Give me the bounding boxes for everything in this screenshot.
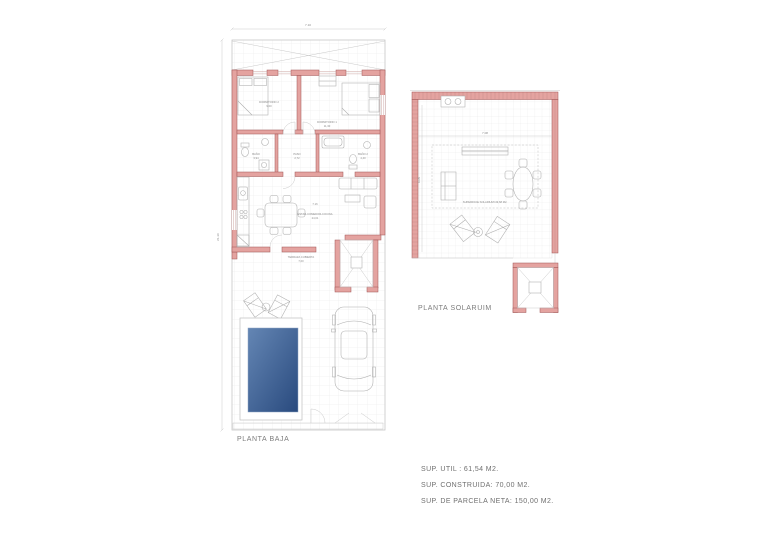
dimension-width: 7.10	[231, 23, 387, 31]
svg-text:7.10: 7.10	[305, 23, 311, 27]
ground-floor-plan: 7.10 21.10	[215, 15, 400, 445]
sup-construida-line: SUP. CONSTRUIDA: 70,00 M2.	[421, 482, 554, 489]
surface-summary: SUP. UTIL : 61,54 M2. SUP. CONSTRUIDA: 7…	[421, 466, 554, 514]
swimming-pool	[240, 318, 302, 420]
dim-label: 7.16	[312, 202, 318, 206]
planta-solarium-label: PLANTA SOLARUIM	[418, 305, 492, 312]
room-label: DORMITORIO 1	[317, 120, 337, 124]
room-label: DORMITORIO 2	[259, 100, 279, 104]
dimension-height: 21.10	[216, 39, 224, 432]
svg-text:7.08: 7.08	[482, 131, 488, 135]
surface-label: SUPERFICIE SOLARIUM=49,68 M2.	[463, 200, 508, 204]
sup-parcela-line: SUP. DE PARCELA NETA: 150,00 M2.	[421, 498, 554, 505]
sup-util-line: SUP. UTIL : 61,54 M2.	[421, 466, 554, 473]
solarium-floor	[418, 99, 552, 258]
solarium-plan: 7.08 6.05 SUPERFICIE SO	[405, 80, 570, 325]
room-area: 9,00	[266, 104, 272, 108]
chimney-icon	[441, 96, 465, 107]
room-area: 3,94	[253, 156, 259, 160]
room-area: 11,30	[324, 124, 331, 128]
room-area: 4,40	[360, 156, 366, 160]
room-label: PASO	[293, 152, 300, 156]
room-label: ESTAR-COMEDOR-COCINA	[297, 212, 332, 216]
room-label: TERRAZA CUBIERTA	[288, 255, 315, 259]
svg-text:6.05: 6.05	[417, 177, 421, 183]
room-area: 24,01	[312, 216, 319, 220]
room-area: 7,00	[298, 259, 304, 263]
room-area: 2,72	[294, 156, 300, 160]
svg-text:21.10: 21.10	[216, 233, 220, 241]
stairs-icon	[513, 263, 558, 313]
planta-baja-label: PLANTA BAJA	[237, 436, 289, 443]
floorplan-sheet: 7.10 21.10	[0, 0, 770, 535]
